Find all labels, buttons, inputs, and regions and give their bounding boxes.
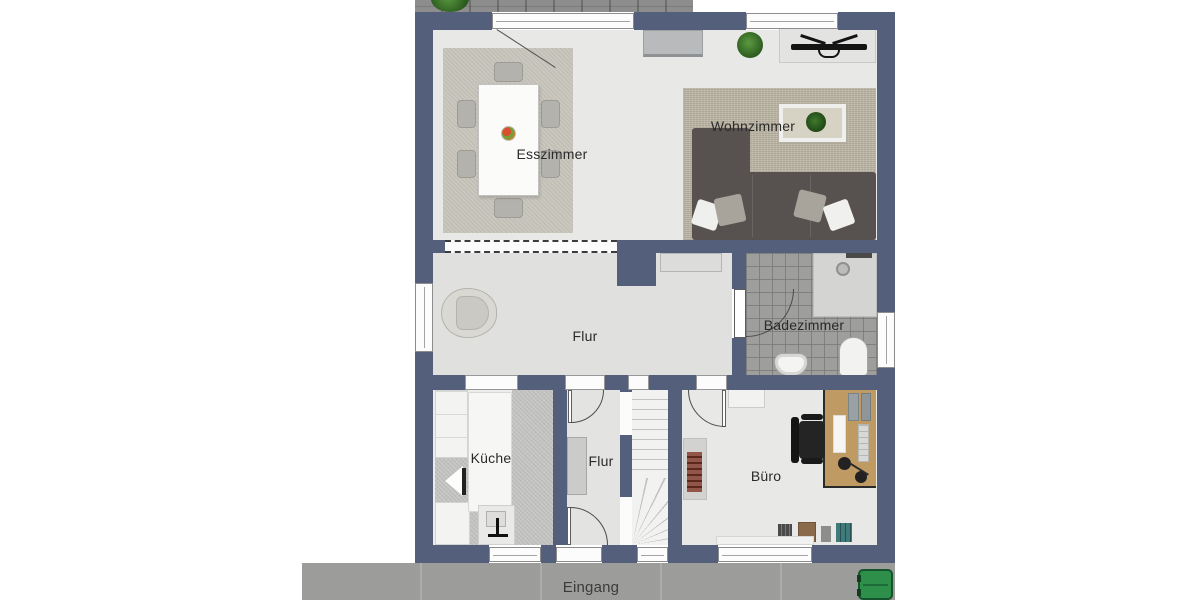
room-label-wohnzimmer: Wohnzimmer xyxy=(693,118,813,134)
dining-chair xyxy=(457,150,476,178)
room-label-badezimmer: Badezimmer xyxy=(744,317,864,333)
bin-handle xyxy=(857,575,861,582)
kitchen-counter xyxy=(435,502,470,545)
office-chair-back xyxy=(791,417,799,463)
bin-lid-line xyxy=(863,584,888,586)
office-chair-armrest xyxy=(801,414,823,420)
wall-segment xyxy=(649,375,696,390)
kitchen-counter xyxy=(435,390,468,458)
room-label-esszimmer: Esszimmer xyxy=(492,146,612,162)
floor-plan: Esszimmer Wohnzimmer Flur Badezimmer Küc… xyxy=(0,0,1200,600)
office-chair-armrest xyxy=(801,458,823,464)
hall-doorway xyxy=(565,375,605,390)
office-dresser xyxy=(728,388,765,408)
desk-monitor xyxy=(848,393,859,421)
green-bin xyxy=(858,569,893,600)
sideboard xyxy=(643,30,703,57)
wall-segment xyxy=(732,253,746,289)
office-door-swing-arc xyxy=(688,390,725,427)
window xyxy=(415,283,433,352)
desk-monitor xyxy=(861,393,871,421)
shower-head-icon xyxy=(836,262,850,276)
wall-segment xyxy=(433,240,445,253)
bin-handle xyxy=(857,589,861,596)
kitchen-doorway xyxy=(465,375,518,390)
dining-chair xyxy=(457,100,476,128)
wall-segment xyxy=(727,375,895,390)
stairs-winder xyxy=(632,478,668,545)
wall-segment xyxy=(541,545,556,563)
wall-opening xyxy=(620,497,632,545)
wall-segment xyxy=(668,390,682,545)
open-passage xyxy=(445,240,617,253)
window-sill xyxy=(716,536,814,545)
window xyxy=(746,13,838,29)
wall-segment xyxy=(634,12,746,30)
sofa-seam xyxy=(752,175,753,237)
wall-segment xyxy=(518,375,565,390)
window xyxy=(637,547,668,562)
toilet xyxy=(839,337,868,376)
wall-segment xyxy=(668,545,718,563)
hall-door-swing-arc xyxy=(571,390,604,423)
entrance-door-threshold xyxy=(556,547,602,562)
sofa-cushion xyxy=(713,193,746,226)
wall-segment xyxy=(617,240,877,253)
dining-chair xyxy=(541,100,560,128)
dining-chair xyxy=(494,62,523,82)
window xyxy=(877,312,895,368)
wall-opening xyxy=(620,392,632,435)
wall-segment xyxy=(877,368,895,563)
room-label-flur: Flur xyxy=(525,328,645,344)
wall-segment xyxy=(602,545,637,563)
desk-paper xyxy=(833,415,846,453)
appliance-bar xyxy=(462,468,466,495)
hall-armchair-seat xyxy=(456,296,489,330)
room-label-kueche: Küche xyxy=(431,450,551,466)
wall-segment xyxy=(732,338,746,380)
stair-doorway xyxy=(628,375,649,390)
desk-keyboard xyxy=(858,424,869,462)
wall-segment xyxy=(415,375,465,390)
office-chair xyxy=(799,421,825,459)
hall-sideboard xyxy=(660,253,722,272)
wall-segment xyxy=(415,545,489,563)
label-eingang: Eingang xyxy=(531,579,651,596)
wall-stub xyxy=(617,253,656,286)
entrance-door-swing-arc xyxy=(570,507,608,545)
bathroom-sink xyxy=(774,353,808,376)
shelf-books xyxy=(821,526,831,542)
shower-fitting xyxy=(846,253,872,258)
fruit-bowl-icon xyxy=(501,126,516,141)
plant-icon xyxy=(737,32,763,58)
wall-segment xyxy=(415,12,433,283)
room-label-flur-small: Flur xyxy=(541,453,661,469)
dining-chair xyxy=(494,198,523,218)
room-label-buero: Büro xyxy=(706,468,826,484)
shelf-books xyxy=(836,523,852,542)
terrace-sliding-door xyxy=(492,13,634,29)
wall-segment xyxy=(812,545,895,563)
office-doorway xyxy=(696,375,727,390)
sofa-chaise xyxy=(692,128,750,178)
kitchen-faucet-icon xyxy=(488,534,508,537)
wall-segment xyxy=(877,12,895,312)
wood-stove xyxy=(687,452,702,492)
window xyxy=(489,547,541,562)
window xyxy=(718,547,812,562)
